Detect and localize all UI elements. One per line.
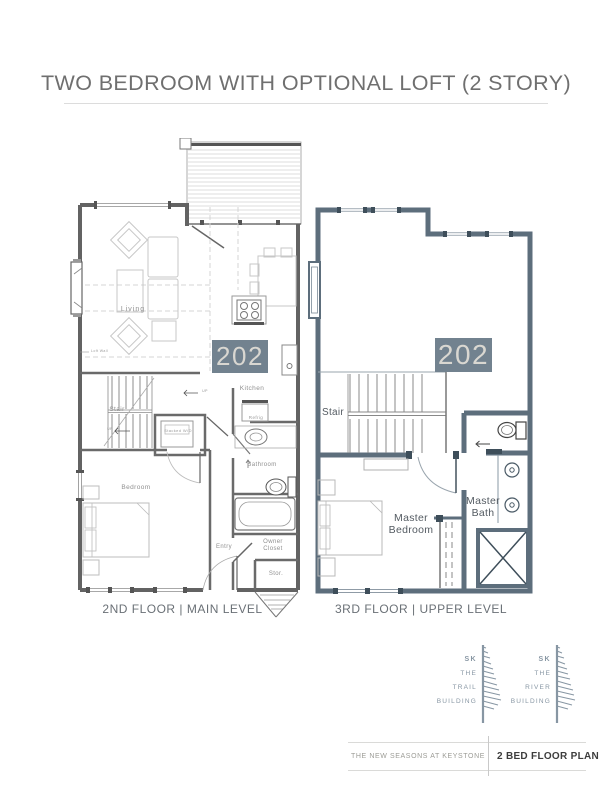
- unit-number-badge: 202: [435, 338, 492, 372]
- trail-building-logo: SK THE TRAIL BUILDING: [420, 645, 502, 723]
- river-building-logo-text: SK THE RIVER BUILDING: [494, 645, 551, 723]
- sheet-title: 2 BED FLOOR PLAN: [497, 743, 599, 770]
- bed-icon: [83, 486, 149, 575]
- main-level-caption: 2ND FLOOR | MAIN LEVEL: [60, 602, 305, 616]
- river-building-logo: SK THE RIVER BUILDING: [494, 645, 576, 723]
- upper-level-plan: Stair Master Bedroom Master Bath 202: [306, 198, 536, 598]
- entry-label: Entry: [206, 544, 242, 551]
- project-name: THE NEW SEASONS AT KEYSTONE: [348, 743, 488, 770]
- sink-icon: [235, 426, 296, 448]
- logo-line: TRAIL: [420, 681, 477, 695]
- toilet-icon: [266, 477, 296, 497]
- door-jamb: [406, 451, 412, 459]
- logo-line: THE: [494, 667, 551, 681]
- kitchen-label: Kitchen: [222, 385, 282, 393]
- logo-line: THE: [420, 667, 477, 681]
- wall-oven-icon: [282, 345, 297, 375]
- unit-number-badge: 202: [212, 340, 268, 373]
- footer-divider: [488, 736, 489, 776]
- owner-closet-label: Owner Closet: [256, 539, 290, 553]
- logo-line: RIVER: [494, 681, 551, 695]
- washer-dryer-icon: [161, 421, 193, 447]
- bathroom-label: Bathroom: [237, 462, 287, 469]
- stove-icon: [232, 296, 266, 325]
- stacked-wd-label: Stacked W/D: [164, 429, 192, 434]
- trail-building-logo-text: SK THE TRAIL BUILDING: [420, 645, 477, 723]
- refrig-label: Refrig: [236, 415, 276, 420]
- bed-icon: [318, 480, 382, 576]
- bathtub-icon: [235, 498, 295, 530]
- toilet-icon: [498, 422, 526, 439]
- stor-label: Stor.: [260, 571, 292, 578]
- upper-level-drawing: [306, 198, 536, 598]
- vanity-edge: [486, 449, 502, 454]
- up-label: UP: [199, 389, 211, 393]
- deck: [180, 138, 301, 225]
- main-level-plan: Living Kitchen Refrig Stair Stacked W/D …: [60, 138, 305, 623]
- stair-label: Stair: [313, 407, 353, 419]
- deck-door: [192, 226, 224, 248]
- bedroom-label: Bedroom: [106, 484, 166, 492]
- living-label: Living: [103, 306, 163, 314]
- stair-label: Stair: [97, 406, 137, 414]
- bedroom-door: [418, 457, 456, 493]
- title-divider: [64, 103, 548, 104]
- logo-line: BUILDING: [494, 695, 551, 709]
- direction-arrow: [476, 441, 490, 447]
- up-label: UP: [104, 427, 116, 431]
- loft-wall-label: Loft Wall: [91, 349, 121, 353]
- upper-level-caption: 3RD FLOOR | UPPER LEVEL: [306, 602, 536, 616]
- footer: THE NEW SEASONS AT KEYSTONE 2 BED FLOOR …: [348, 742, 586, 771]
- sk-mark: SK: [494, 653, 551, 667]
- shower-icon: [478, 530, 528, 586]
- sk-mark: SK: [420, 653, 477, 667]
- dresser: [364, 459, 408, 470]
- logo-line: BUILDING: [420, 695, 477, 709]
- living-furniture: [111, 222, 178, 355]
- master-bedroom-label: Master Bedroom: [381, 512, 441, 537]
- pine-tree-icon: [554, 645, 576, 723]
- page-title: TWO BEDROOM WITH OPTIONAL LOFT (2 STORY): [0, 71, 612, 96]
- master-bath-label: Master Bath: [458, 495, 508, 520]
